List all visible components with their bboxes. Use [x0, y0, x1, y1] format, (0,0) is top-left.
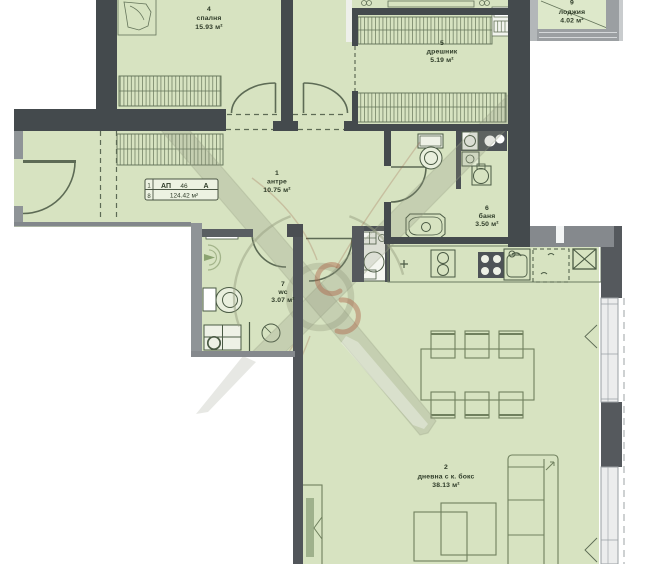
svg-text:38.13 м²: 38.13 м²	[432, 482, 460, 489]
svg-text:4.02 м²: 4.02 м²	[560, 18, 584, 25]
svg-text:дрешник: дрешник	[427, 49, 458, 56]
svg-text:А: А	[203, 183, 208, 190]
svg-text:46: 46	[180, 183, 188, 190]
svg-text:6: 6	[485, 205, 489, 212]
svg-text:5.19 м²: 5.19 м²	[430, 57, 454, 64]
svg-text:3.50 м²: 3.50 м²	[475, 221, 499, 228]
svg-text:1: 1	[275, 170, 279, 177]
svg-text:15.93 м²: 15.93 м²	[195, 24, 223, 31]
svg-text:2: 2	[444, 464, 448, 471]
svg-text:лоджия: лоджия	[559, 9, 585, 16]
svg-text:5: 5	[440, 40, 444, 47]
svg-text:9: 9	[570, 0, 574, 7]
svg-text:wc: wc	[277, 289, 287, 296]
svg-text:спалня: спалня	[197, 15, 222, 22]
svg-text:АП: АП	[161, 183, 171, 190]
svg-text:4: 4	[207, 6, 211, 13]
svg-text:7: 7	[281, 281, 285, 288]
svg-text:10.75 м²: 10.75 м²	[263, 187, 291, 194]
svg-text:баня: баня	[479, 212, 496, 220]
svg-text:дневна с к. бокс: дневна с к. бокс	[418, 473, 475, 481]
svg-text:124.42 м²: 124.42 м²	[170, 193, 199, 200]
svg-text:антре: антре	[267, 179, 287, 186]
svg-text:3.07 м²: 3.07 м²	[271, 297, 295, 304]
